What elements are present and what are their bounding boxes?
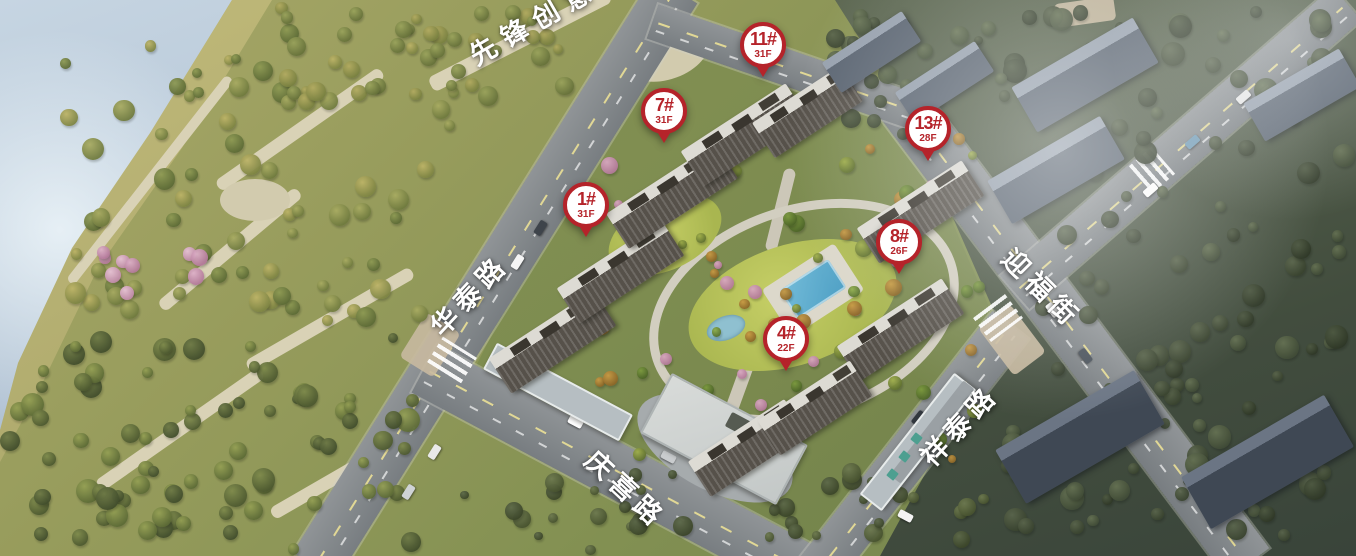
pin-badge: 13#28F <box>905 106 951 152</box>
pin-building-number: 11# <box>750 30 776 48</box>
building-pin-1[interactable]: 1#31F <box>563 182 609 237</box>
pin-building-number: 4# <box>777 324 795 342</box>
pin-floor-count: 31F <box>577 210 594 220</box>
pin-badge: 11#31F <box>740 22 786 68</box>
pin-badge: 7#31F <box>641 88 687 134</box>
building-pin-8[interactable]: 8#26F <box>876 219 922 274</box>
building-pin-7[interactable]: 7#31F <box>641 88 687 143</box>
pin-floor-count: 22F <box>777 344 794 354</box>
pin-building-number: 1# <box>577 190 595 208</box>
aerial-masterplan-rendering: 先锋创意华泰路迎福街庆喜路祥泰路 1#31F7#31F11#31F13#28F8… <box>0 0 1356 556</box>
pin-floor-count: 31F <box>655 116 672 126</box>
pins-layer: 1#31F7#31F11#31F13#28F8#26F4#22F <box>0 0 1356 556</box>
building-pin-13[interactable]: 13#28F <box>905 106 951 161</box>
pin-building-number: 7# <box>655 96 673 114</box>
pin-floor-count: 31F <box>754 50 771 60</box>
pin-badge: 1#31F <box>563 182 609 228</box>
pin-badge: 8#26F <box>876 219 922 265</box>
pin-building-number: 13# <box>914 114 941 132</box>
pin-badge: 4#22F <box>763 316 809 362</box>
pin-building-number: 8# <box>890 227 908 245</box>
building-pin-11[interactable]: 11#31F <box>740 22 786 77</box>
building-pin-4[interactable]: 4#22F <box>763 316 809 371</box>
pin-floor-count: 28F <box>919 134 936 144</box>
pin-floor-count: 26F <box>890 247 907 257</box>
